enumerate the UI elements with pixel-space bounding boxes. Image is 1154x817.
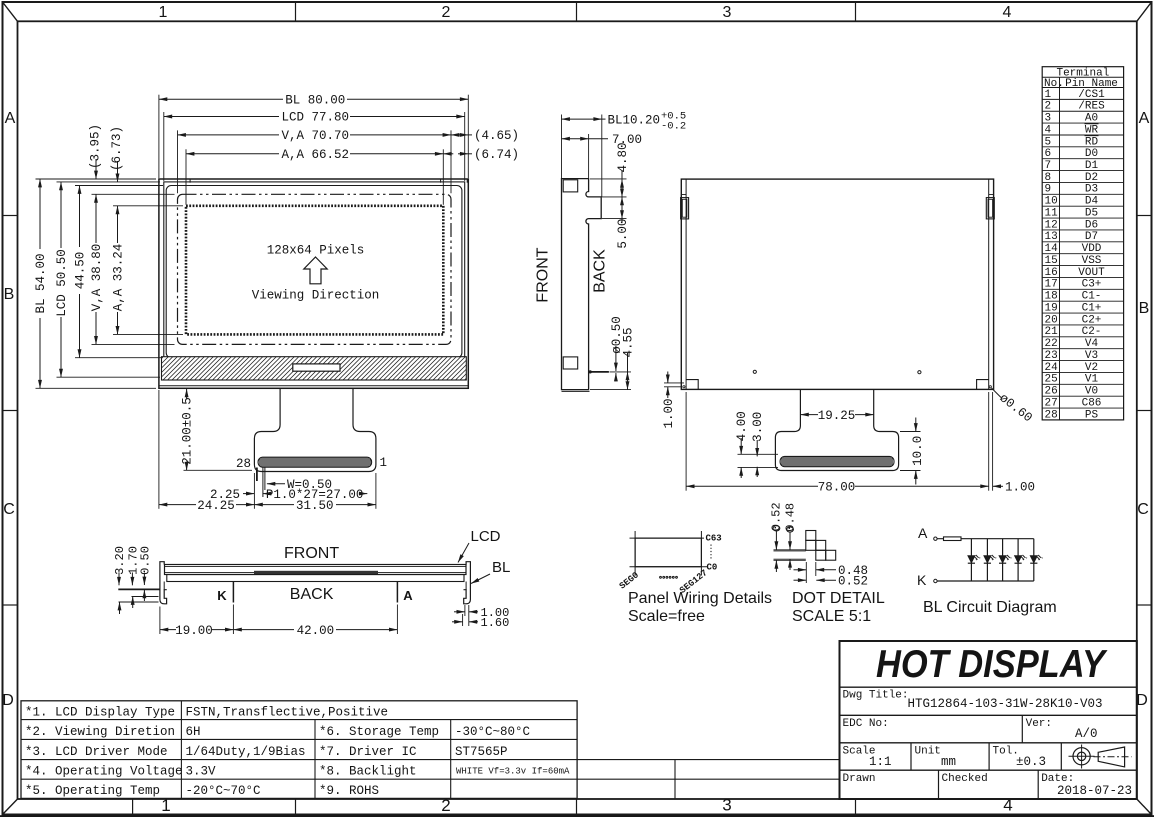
svg-text:K: K xyxy=(917,572,927,588)
svg-text:*7. Driver IC: *7. Driver IC xyxy=(319,745,417,759)
svg-text:Panel Wiring Details: Panel Wiring Details xyxy=(628,590,772,607)
svg-text:LCD: LCD xyxy=(471,528,501,545)
svg-text:0.52: 0.52 xyxy=(838,574,868,588)
svg-text:21: 21 xyxy=(1045,326,1059,338)
svg-text:D4: D4 xyxy=(1085,196,1099,208)
svg-text:D7: D7 xyxy=(1085,231,1098,243)
svg-text:1: 1 xyxy=(1045,89,1052,101)
svg-text:4.00: 4.00 xyxy=(735,411,749,441)
svg-text:Viewing Direction: Viewing Direction xyxy=(252,289,380,303)
svg-text:18: 18 xyxy=(1045,291,1058,303)
svg-text:25: 25 xyxy=(1045,374,1058,386)
svg-text:27: 27 xyxy=(1045,397,1058,409)
svg-text:-20°C~70°C: -20°C~70°C xyxy=(186,784,261,798)
svg-text:3.20: 3.20 xyxy=(113,546,127,575)
svg-text:BL 54.00: BL 54.00 xyxy=(34,253,48,313)
svg-text:D3: D3 xyxy=(1085,184,1098,196)
svg-text:2: 2 xyxy=(442,4,451,21)
svg-text:6: 6 xyxy=(1045,148,1052,160)
svg-text:D5: D5 xyxy=(1085,207,1098,219)
svg-text:PS: PS xyxy=(1085,409,1099,421)
svg-text:C: C xyxy=(1137,501,1149,518)
svg-text:*5. Operating Temp: *5. Operating Temp xyxy=(25,784,160,798)
svg-text:10.0: 10.0 xyxy=(911,436,925,466)
svg-text:17: 17 xyxy=(1045,279,1058,291)
svg-text:D0: D0 xyxy=(1085,148,1098,160)
svg-text:A: A xyxy=(918,525,928,541)
svg-text:1: 1 xyxy=(159,4,168,21)
svg-text:A,A 33.24: A,A 33.24 xyxy=(112,244,126,312)
svg-text:1/64Duty,1/9Bias: 1/64Duty,1/9Bias xyxy=(186,745,306,759)
svg-text:6H: 6H xyxy=(186,725,201,739)
svg-text:B: B xyxy=(4,286,15,303)
svg-text:V0: V0 xyxy=(1085,386,1098,398)
svg-text:Scale=free: Scale=free xyxy=(628,608,705,625)
svg-text:4: 4 xyxy=(1045,124,1052,136)
svg-text:7: 7 xyxy=(1045,160,1052,172)
svg-text:±0.3: ±0.3 xyxy=(1016,755,1046,769)
svg-text:15: 15 xyxy=(1045,255,1058,267)
svg-text:10: 10 xyxy=(1045,196,1058,208)
svg-text:VOUT: VOUT xyxy=(1078,267,1105,279)
svg-text:A,A 66.52: A,A 66.52 xyxy=(282,148,350,162)
svg-text:mm: mm xyxy=(941,755,956,769)
svg-text:1:1: 1:1 xyxy=(869,755,892,769)
svg-text:A: A xyxy=(5,110,16,127)
svg-text:11: 11 xyxy=(1045,207,1059,219)
svg-text:19.00: 19.00 xyxy=(175,624,213,638)
svg-text:78.00: 78.00 xyxy=(818,481,856,495)
svg-text:5: 5 xyxy=(1045,136,1052,148)
svg-text:24: 24 xyxy=(1045,362,1059,374)
svg-text:3: 3 xyxy=(723,4,732,21)
svg-text:*4. Operating Voltage: *4. Operating Voltage xyxy=(25,765,183,779)
svg-text:*3. LCD Driver Mode: *3. LCD Driver Mode xyxy=(25,745,168,759)
svg-text:D1: D1 xyxy=(1085,160,1099,172)
svg-text:A0: A0 xyxy=(1085,113,1098,125)
svg-text:DOT DETAIL: DOT DETAIL xyxy=(792,590,885,607)
svg-text:Ver:: Ver: xyxy=(1026,718,1052,730)
svg-text:Tol.: Tol. xyxy=(993,746,1019,758)
svg-text:Dwg Title:: Dwg Title: xyxy=(843,690,909,702)
svg-text:LCD 50.50: LCD 50.50 xyxy=(55,249,69,317)
svg-text:ST7565P: ST7565P xyxy=(455,745,508,759)
svg-text:D: D xyxy=(1136,692,1148,709)
svg-text:HOT DISPLAY: HOT DISPLAY xyxy=(876,643,1108,686)
svg-text:*6. Storage Temp: *6. Storage Temp xyxy=(319,725,439,739)
svg-text:VDD: VDD xyxy=(1082,243,1102,255)
svg-text:42.00: 42.00 xyxy=(297,624,335,638)
svg-text:Checked: Checked xyxy=(942,773,988,785)
svg-text:A/0: A/0 xyxy=(1075,727,1098,741)
svg-text:/RES: /RES xyxy=(1078,101,1105,113)
svg-text:HTG12864-103-31W-28K10-V03: HTG12864-103-31W-28K10-V03 xyxy=(907,697,1102,711)
svg-text:V2: V2 xyxy=(1085,362,1098,374)
svg-text:BL: BL xyxy=(492,559,510,576)
svg-text:128x64 Pixels: 128x64 Pixels xyxy=(267,244,365,258)
svg-text:C86: C86 xyxy=(1082,397,1102,409)
svg-text:26: 26 xyxy=(1045,386,1058,398)
svg-text:V1: V1 xyxy=(1085,374,1099,386)
svg-text:EDC No:: EDC No: xyxy=(843,718,889,730)
svg-text:8: 8 xyxy=(1045,172,1052,184)
svg-text:*1. LCD Display Type: *1. LCD Display Type xyxy=(25,705,175,719)
svg-text:BL Circuit Diagram: BL Circuit Diagram xyxy=(923,599,1057,616)
svg-text:D2: D2 xyxy=(1085,172,1098,184)
svg-text:SCALE 5:1: SCALE 5:1 xyxy=(792,608,871,625)
svg-text:A: A xyxy=(403,588,413,603)
svg-text:(6.74): (6.74) xyxy=(474,148,519,162)
svg-text:31.50: 31.50 xyxy=(296,499,334,513)
svg-text:Drawn: Drawn xyxy=(843,773,876,785)
svg-text:FRONT: FRONT xyxy=(284,545,339,562)
svg-text:-0.2: -0.2 xyxy=(661,121,686,133)
svg-text:C2-: C2- xyxy=(1082,326,1102,338)
svg-text:LCD 77.80: LCD 77.80 xyxy=(282,111,350,125)
svg-text:BACK: BACK xyxy=(290,586,334,603)
svg-text:19.25: 19.25 xyxy=(818,409,856,423)
svg-text:BACK: BACK xyxy=(592,249,609,293)
svg-text:D: D xyxy=(2,692,14,709)
svg-text:28: 28 xyxy=(1045,409,1058,421)
svg-text:BL 80.00: BL 80.00 xyxy=(285,93,345,107)
svg-text:3: 3 xyxy=(722,796,731,815)
svg-text:24.25: 24.25 xyxy=(197,499,235,513)
svg-text:*2. Viewing Diretion: *2. Viewing Diretion xyxy=(25,725,175,739)
svg-text:/CS1: /CS1 xyxy=(1078,89,1105,101)
svg-text:C1-: C1- xyxy=(1082,291,1102,303)
svg-text:WR: WR xyxy=(1085,124,1099,136)
svg-text:13: 13 xyxy=(1045,231,1058,243)
svg-text:C1+: C1+ xyxy=(1082,302,1102,314)
svg-text:23: 23 xyxy=(1045,350,1058,362)
svg-text:RD: RD xyxy=(1085,136,1099,148)
svg-text:4.80: 4.80 xyxy=(616,142,630,172)
svg-text:A: A xyxy=(1139,110,1150,127)
svg-text:C2+: C2+ xyxy=(1082,314,1102,326)
svg-text:1.00: 1.00 xyxy=(1005,481,1035,495)
svg-text:19: 19 xyxy=(1045,302,1058,314)
svg-text:*9. ROHS: *9. ROHS xyxy=(319,784,379,798)
svg-text:9: 9 xyxy=(1045,184,1052,196)
svg-text:3.00: 3.00 xyxy=(751,412,765,442)
svg-text:16: 16 xyxy=(1045,267,1058,279)
svg-text:D6: D6 xyxy=(1085,219,1098,231)
svg-text:20: 20 xyxy=(1045,314,1058,326)
svg-text:C3+: C3+ xyxy=(1082,279,1102,291)
svg-text:BL10.20: BL10.20 xyxy=(608,113,661,127)
svg-text:V,A 70.70: V,A 70.70 xyxy=(282,129,350,143)
svg-text:2: 2 xyxy=(1045,101,1052,113)
svg-text:1: 1 xyxy=(380,456,388,470)
svg-text:0.50: 0.50 xyxy=(138,546,152,575)
svg-text:FSTN,Transflective,Positive: FSTN,Transflective,Positive xyxy=(186,705,389,719)
svg-text:4: 4 xyxy=(1003,4,1012,21)
svg-text:12: 12 xyxy=(1045,219,1058,231)
svg-text:3.3V: 3.3V xyxy=(186,765,217,779)
svg-text:V4: V4 xyxy=(1085,338,1099,350)
svg-text:1.00: 1.00 xyxy=(662,398,676,428)
svg-text:5.00: 5.00 xyxy=(616,219,630,249)
svg-text:2018-07-23: 2018-07-23 xyxy=(1057,784,1132,798)
svg-text:C63: C63 xyxy=(706,534,722,544)
svg-text:VSS: VSS xyxy=(1082,255,1102,267)
svg-text:0.52: 0.52 xyxy=(769,502,783,531)
svg-text:V,A 38.80: V,A 38.80 xyxy=(90,244,104,312)
svg-text:22: 22 xyxy=(1045,338,1058,350)
svg-text:28: 28 xyxy=(236,457,251,471)
svg-text:21.00±0.5: 21.00±0.5 xyxy=(181,397,195,465)
svg-text:K: K xyxy=(217,588,227,603)
svg-text:14: 14 xyxy=(1045,243,1059,255)
svg-text:B: B xyxy=(1139,300,1150,317)
svg-text:*8. Backlight: *8. Backlight xyxy=(319,765,417,779)
svg-text:1.60: 1.60 xyxy=(481,616,510,630)
svg-text:3: 3 xyxy=(1045,113,1052,125)
svg-text:C: C xyxy=(3,501,15,518)
svg-text:C0: C0 xyxy=(707,563,718,573)
svg-text:Unit: Unit xyxy=(915,746,941,758)
svg-text:-30°C~80°C: -30°C~80°C xyxy=(455,725,530,739)
svg-text:(4.65): (4.65) xyxy=(474,129,519,143)
svg-text:FRONT: FRONT xyxy=(535,247,552,302)
svg-text:44.50: 44.50 xyxy=(74,252,88,290)
svg-text:V3: V3 xyxy=(1085,350,1098,362)
svg-text:WHITE Vf=3.3v If=60mA: WHITE Vf=3.3v If=60mA xyxy=(456,766,570,776)
svg-text:4.55: 4.55 xyxy=(622,327,636,357)
